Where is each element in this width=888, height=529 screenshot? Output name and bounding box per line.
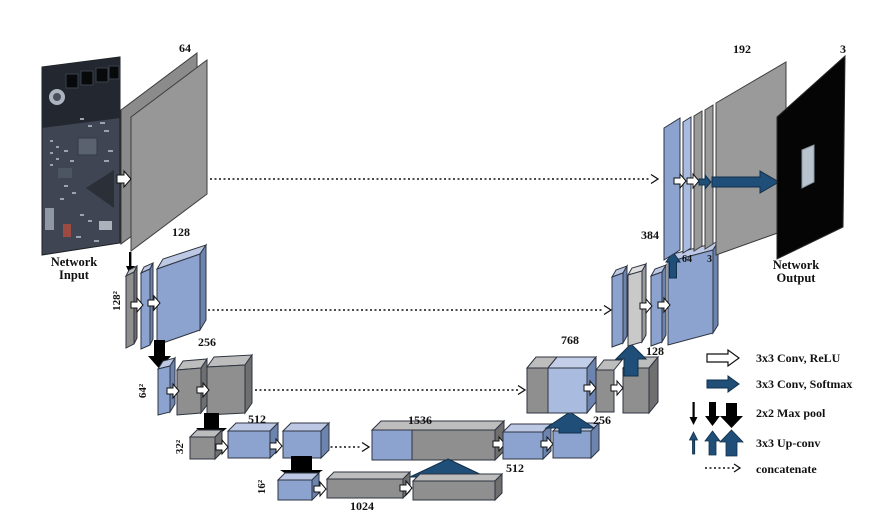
concatenate-arrowhead-1 — [651, 175, 658, 184]
decoder-block-192 — [664, 62, 786, 260]
enc4-size-label: 32² — [175, 440, 187, 454]
legend-concatenate-label: concatenate — [756, 462, 817, 477]
dec2-channels-label: 384 — [641, 229, 659, 242]
dec2-up-channels-label: 64 — [682, 255, 692, 266]
dec2-up-out-label: 3 — [707, 255, 712, 266]
dec4-up-channels-label: 256 — [593, 414, 611, 427]
bottleneck-size-label: 16² — [257, 480, 269, 494]
enc3-size-label: 64² — [138, 384, 150, 398]
output-defect-region — [802, 145, 814, 188]
concatenate-arrowhead-2 — [604, 306, 611, 315]
encoder-block-128 — [126, 245, 206, 349]
legend-upconv-label: 3x3 Up-conv — [756, 436, 820, 451]
dec3-channels-label: 768 — [561, 334, 579, 347]
decoder-block-1536 — [372, 421, 504, 460]
network-input-label: Network Input — [38, 256, 110, 282]
upconv-arrows-icon — [690, 430, 744, 456]
input-image — [42, 57, 120, 255]
conv-relu-arrow-icon — [707, 350, 739, 366]
enc3-channels-label: 256 — [198, 336, 216, 349]
unet-architecture-figure: 64 128 256 512 1024 1536 512 256 768 128… — [0, 0, 888, 529]
legend-conv-softmax-label: 3x3 Conv, Softmax — [756, 377, 852, 392]
enc2-size-label: 128² — [112, 291, 124, 311]
conv-softmax-arrow-icon — [707, 376, 739, 392]
bottleneck-channels-label: 1024 — [350, 500, 374, 513]
concatenate-arrowhead-4 — [362, 443, 369, 452]
enc1-channels-label: 64 — [179, 42, 191, 55]
encoder-block-64 — [121, 53, 207, 251]
concatenate-arrow-icon — [705, 464, 740, 472]
dec3-up-channels-label: 128 — [646, 345, 664, 358]
legend-maxpool-label: 2x2 Max pool — [756, 406, 825, 421]
enc2-channels-label: 128 — [172, 226, 190, 239]
output-image — [777, 56, 845, 259]
dec1-channels-label: 192 — [733, 43, 751, 56]
concatenate-arrowhead-3 — [518, 386, 525, 395]
legend-conv-relu-label: 3x3 Conv, ReLU — [756, 351, 840, 366]
network-output-label: Network Output — [759, 259, 833, 285]
output-channels-label: 3 — [840, 43, 846, 56]
enc4-channels-label: 512 — [248, 413, 266, 426]
dec4-mid-channels-label: 512 — [506, 462, 524, 475]
dec4-channels-label: 1536 — [408, 414, 432, 427]
maxpool-arrows-icon — [690, 402, 744, 428]
bottleneck-block-1024 — [278, 472, 502, 500]
unet-diagram-canvas — [0, 0, 888, 529]
